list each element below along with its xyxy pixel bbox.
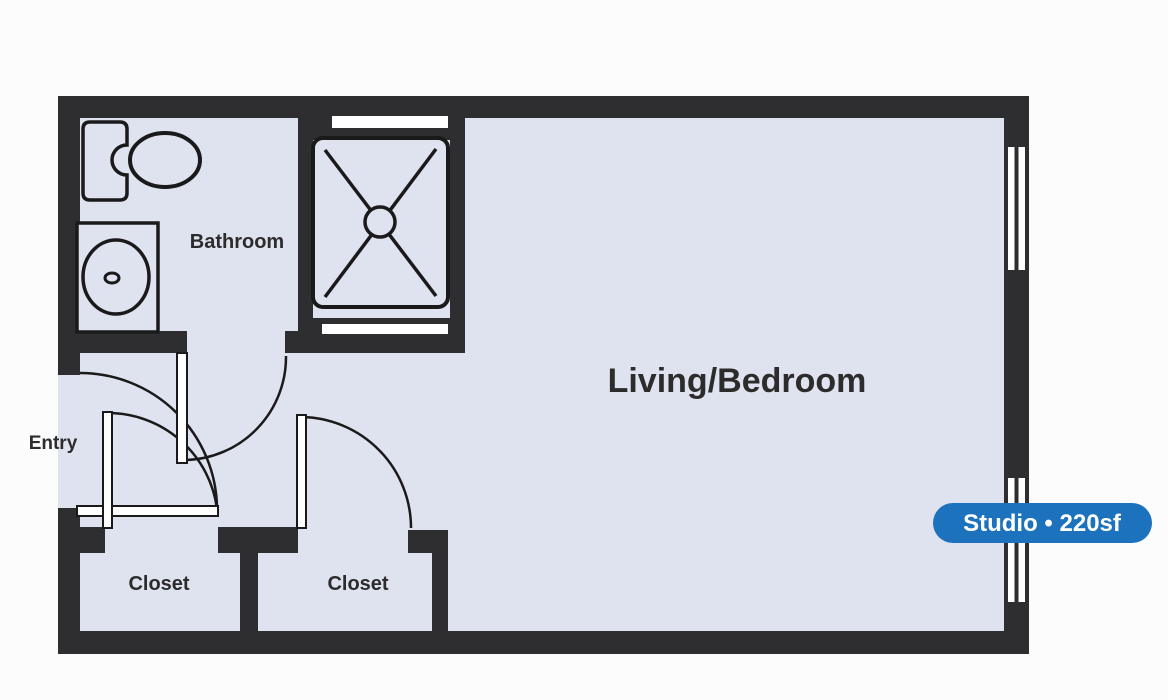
wall-shower-right [450, 96, 465, 353]
floor-plan-page: Bathroom Entry Closet Closet Living/Bedr… [0, 0, 1168, 700]
wall-right-corner [1004, 96, 1029, 147]
bathroom-label: Bathroom [190, 231, 284, 253]
wall-closet-right-top [408, 530, 448, 553]
wall-right-bottom [1004, 602, 1029, 654]
shower-icon [313, 138, 448, 307]
bathroom-door-leaf [177, 353, 187, 463]
wall-right-mid [1004, 270, 1029, 478]
closet-right-label: Closet [327, 573, 388, 595]
apartment-floor [58, 96, 1029, 654]
unit-size-badge-text: Studio • 220sf [963, 510, 1122, 537]
sink-drain [105, 273, 119, 283]
wall-bottom [58, 631, 1029, 654]
shower-drain [365, 207, 395, 237]
window-upper-bar-left [1004, 147, 1008, 270]
closet-left-label: Closet [128, 573, 189, 595]
wall-top [58, 96, 1029, 118]
wall-shower-bottom [313, 318, 465, 353]
living-bedroom-label: Living/Bedroom [608, 362, 867, 400]
wall-shower-bottom-slot [322, 324, 448, 334]
wall-closet-right-side [432, 553, 448, 631]
closet-left-door-leaf [103, 412, 112, 528]
sink-icon [77, 223, 158, 332]
floor-plan-svg: Bathroom Entry Closet Closet Living/Bedr… [0, 0, 1168, 700]
wall-closet-center-pier [240, 553, 258, 631]
wall-shower-top-slot [332, 116, 448, 128]
window-upper-bar-right [1025, 147, 1029, 270]
entry-label: Entry [29, 433, 78, 454]
wall-bathroom-bottom [80, 331, 187, 353]
toilet-bowl [130, 133, 200, 187]
window-upper-bar-mid [1015, 147, 1019, 270]
closet-right-door-leaf [297, 415, 306, 528]
window-icon [1004, 147, 1029, 270]
wall-shower-left [298, 118, 313, 353]
entry-door-leaf [77, 506, 218, 516]
unit-size-badge: Studio • 220sf [933, 503, 1152, 543]
wall-closet-center-top [218, 527, 298, 553]
wall-closet-left-stub [75, 527, 105, 553]
